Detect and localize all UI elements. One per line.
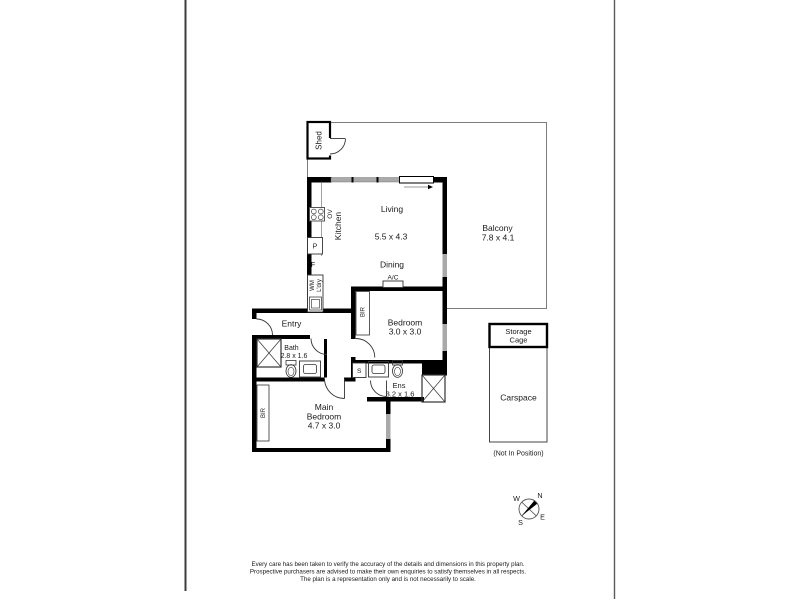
entry-door <box>257 319 273 335</box>
balcony-outline <box>308 123 547 309</box>
sliding-door <box>400 177 434 190</box>
ensuite-dims: 3.2 x 1.6 <box>386 390 415 399</box>
carspace-note: (Not In Position) <box>493 450 543 457</box>
compass-north: N <box>537 491 542 500</box>
disclaimer-line-1: Every care has been taken to verify the … <box>251 561 524 568</box>
carspace-label: Carspace <box>500 392 537 402</box>
floor-plan-page: Living 5.5 x 4.3 Balcony 7.8 x 4.1 Dinin… <box>0 0 800 600</box>
ensuite-door <box>371 381 387 397</box>
shed <box>308 122 346 159</box>
bedroom-dims: 3.0 x 3.0 <box>389 326 422 336</box>
compass-west: W <box>513 494 520 503</box>
bath-vanity-icon <box>300 361 321 377</box>
page-border <box>186 0 615 599</box>
walls <box>252 177 447 452</box>
storage-cupboard-label: S <box>357 368 362 375</box>
door-arrow <box>428 185 433 189</box>
kitchen-label: Kitchen <box>333 212 343 241</box>
main-bedroom-window <box>386 414 391 439</box>
ensuite-shower-icon <box>422 375 445 402</box>
air-conditioner-label: A/C <box>388 274 399 281</box>
disclaimer-line-2: Prospective purchasers are advised to ma… <box>250 569 526 576</box>
compass-icon <box>519 499 539 519</box>
main-bedroom-label-1: Main <box>315 402 334 412</box>
disclaimer-line-3: The plan is a representation only and is… <box>300 576 476 583</box>
entry-label: Entry <box>282 318 303 328</box>
bedroom-bir-label: BIR <box>361 306 367 317</box>
air-conditioner-box <box>383 281 403 288</box>
oven-label: OV <box>327 209 334 219</box>
cooktop-icon <box>310 208 325 222</box>
compass-east: E <box>540 513 545 522</box>
floor-plan-canvas: Living 5.5 x 4.3 Balcony 7.8 x 4.1 Dinin… <box>0 0 800 600</box>
bath-toilet-icon <box>286 361 296 378</box>
balcony-dims: 7.8 x 4.1 <box>482 232 515 242</box>
bedroom-door <box>356 339 375 358</box>
pantry-label: P <box>313 243 318 250</box>
bath-shower-icon <box>257 339 281 367</box>
laundry-label: L'dry <box>317 279 323 292</box>
main-bedroom-door <box>325 379 345 399</box>
living-label: Living <box>381 204 403 214</box>
washing-machine-label: WM <box>310 280 316 291</box>
storage-cage-label-2: Cage <box>510 336 528 345</box>
living-dims: 5.5 x 4.3 <box>375 231 408 241</box>
fridge-label: F <box>311 262 315 269</box>
living-north-window <box>331 178 400 183</box>
shed-label: Shed <box>314 131 323 150</box>
main-bedroom-dims: 4.7 x 3.0 <box>308 420 341 430</box>
shed-door <box>330 139 346 155</box>
main-bir-label: BIR <box>261 407 267 418</box>
compass-south: S <box>518 518 523 527</box>
bath-dims: 2.8 x 1.6 <box>281 353 308 360</box>
bedroom-east-window <box>443 324 448 351</box>
dining-label: Dining <box>380 259 404 269</box>
dining-east-window <box>443 254 448 277</box>
ensuite-vanity-icon <box>369 362 389 378</box>
bath-label: Bath <box>284 345 299 352</box>
balcony-label: Balcony <box>482 223 513 233</box>
